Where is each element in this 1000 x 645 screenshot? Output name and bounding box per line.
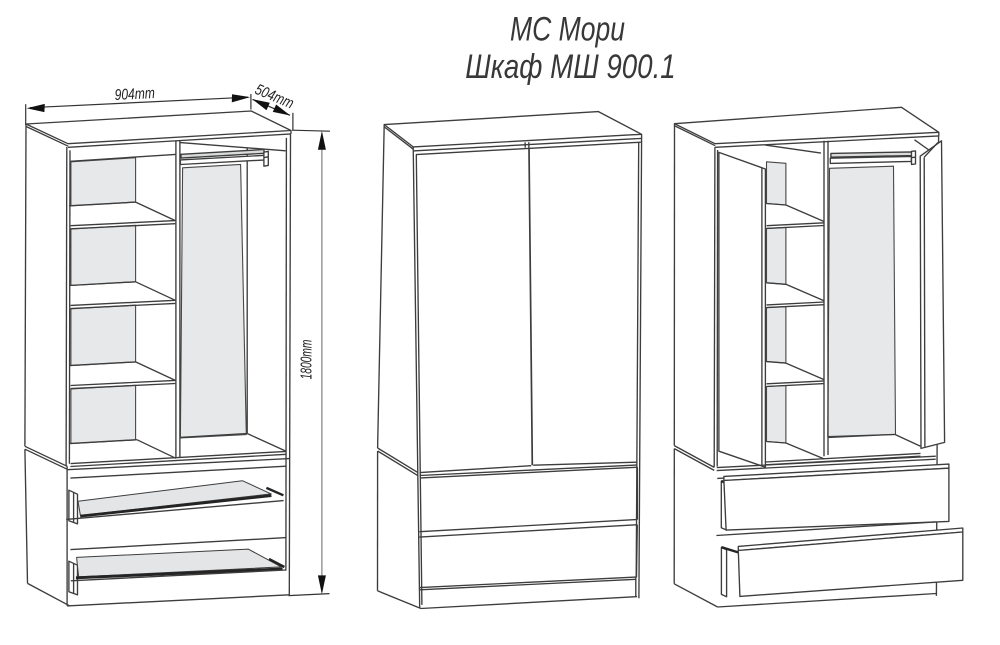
svg-text:904mm: 904mm — [114, 84, 155, 104]
svg-text:МС Мори: МС Мори — [510, 10, 625, 48]
svg-text:1800mm: 1800mm — [297, 340, 315, 380]
svg-text:Шкаф МШ 900.1: Шкаф МШ 900.1 — [465, 48, 675, 86]
